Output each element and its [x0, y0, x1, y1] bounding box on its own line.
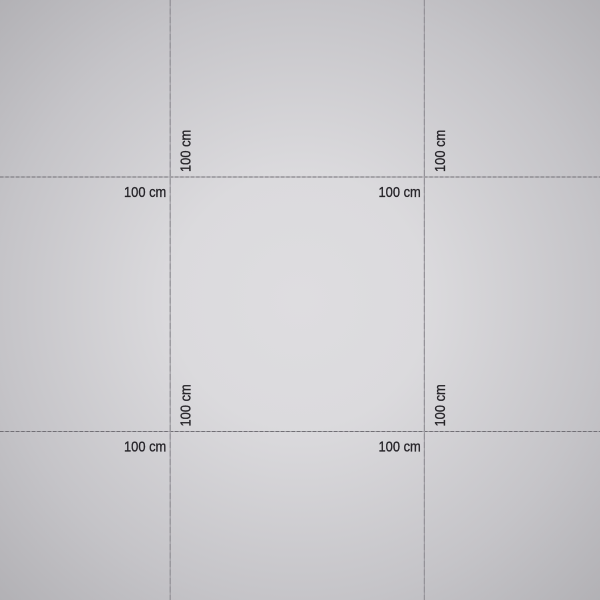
svg-text:100 cm: 100 cm	[379, 185, 421, 201]
svg-text:100 cm: 100 cm	[379, 440, 421, 456]
svg-text:100 cm: 100 cm	[433, 384, 449, 426]
svg-text:100 cm: 100 cm	[124, 440, 166, 456]
svg-text:100 cm: 100 cm	[179, 130, 195, 172]
svg-text:100 cm: 100 cm	[124, 185, 166, 201]
svg-text:100 cm: 100 cm	[179, 384, 195, 426]
svg-text:100 cm: 100 cm	[433, 130, 449, 172]
